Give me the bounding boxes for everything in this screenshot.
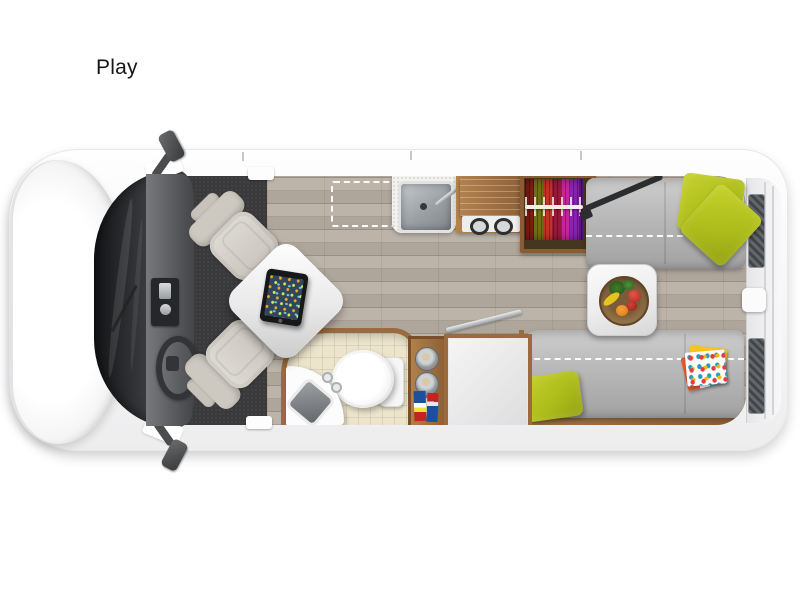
magazines — [685, 349, 728, 386]
rear-door-window — [748, 338, 765, 414]
burner — [494, 218, 513, 235]
pillar-cap-bottom — [246, 416, 272, 429]
two-burner-cooktop — [462, 216, 520, 232]
hanger-rod — [525, 205, 583, 209]
console-dial — [160, 304, 171, 315]
door-seam-tick — [580, 151, 582, 160]
center-console — [151, 278, 179, 326]
fruit-orange — [616, 305, 628, 316]
book — [426, 393, 438, 422]
door-seam-tick — [242, 152, 244, 161]
fruit-greens — [623, 280, 634, 290]
dinette-table — [587, 264, 657, 336]
console-screen — [159, 283, 171, 299]
rear-door-seam — [772, 186, 774, 415]
sink-handle — [322, 372, 333, 383]
sink-handle — [331, 382, 342, 393]
hanging-clothes — [525, 179, 583, 240]
model-title: Play — [96, 56, 138, 80]
fruit-bowl — [599, 276, 649, 326]
canister — [415, 347, 439, 371]
tablet-home-button — [278, 318, 283, 323]
floor-option-outline — [331, 181, 395, 227]
sink-drain — [420, 203, 427, 210]
tablet-screen — [264, 275, 304, 321]
cooktop-flip-cover — [460, 178, 520, 216]
floorplan-image: Play — [0, 0, 800, 600]
burner — [470, 218, 489, 235]
book — [413, 391, 426, 421]
tablet — [259, 268, 309, 327]
storage-cabinet — [444, 334, 532, 425]
pillar-cap-top — [248, 167, 274, 180]
toilet — [332, 350, 394, 408]
rear-door-latch — [742, 288, 766, 312]
sofa-seam — [664, 182, 666, 264]
corner-sink-basin — [284, 376, 336, 425]
door-seam-tick — [410, 151, 412, 160]
